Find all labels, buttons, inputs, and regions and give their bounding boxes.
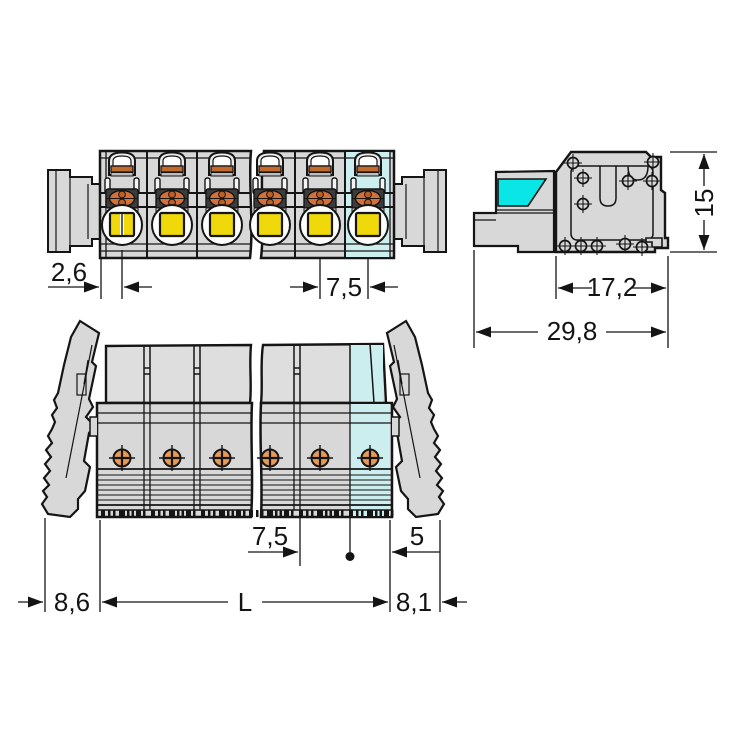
dim-front-length: L: [238, 587, 252, 617]
front-side-step-left: [90, 417, 97, 436]
dim-front-left-overhang: 8,6: [54, 587, 90, 617]
dim-top-pole-offset: 2,6: [51, 257, 87, 287]
top-view: 2,6 7,5: [48, 151, 446, 302]
reference-point-dot: [346, 552, 355, 561]
right-latch: [393, 170, 446, 252]
pole-4: [250, 153, 290, 246]
dim-side-housing-depth: 17,2: [587, 272, 638, 302]
front-upper-housing-left: [106, 345, 251, 403]
drawing-canvas: 2,6 7,5: [0, 0, 750, 750]
dim-front-end-offset: 5: [410, 521, 424, 551]
side-view: 15 17,2 29,8: [474, 152, 719, 348]
connector-technical-drawing: 2,6 7,5: [0, 0, 750, 750]
left-latch: [48, 170, 101, 252]
pole-6: [348, 153, 388, 246]
pole-5: [300, 153, 340, 246]
pole-2: [152, 153, 192, 246]
dim-front-pitch: 7,5: [252, 521, 288, 551]
front-side-step-right: [392, 417, 399, 436]
dim-top-pitch: 7,5: [326, 272, 362, 302]
dim-front-right-overhang: 8,1: [396, 587, 432, 617]
dim-side-height: 15: [689, 189, 719, 218]
highlight-pole-upper-front: [350, 345, 383, 402]
dim-side-total-depth: 29,8: [547, 316, 598, 346]
pole-3: [202, 153, 242, 246]
front-view: 7,5 5 8,6 L 8,1: [18, 321, 467, 617]
